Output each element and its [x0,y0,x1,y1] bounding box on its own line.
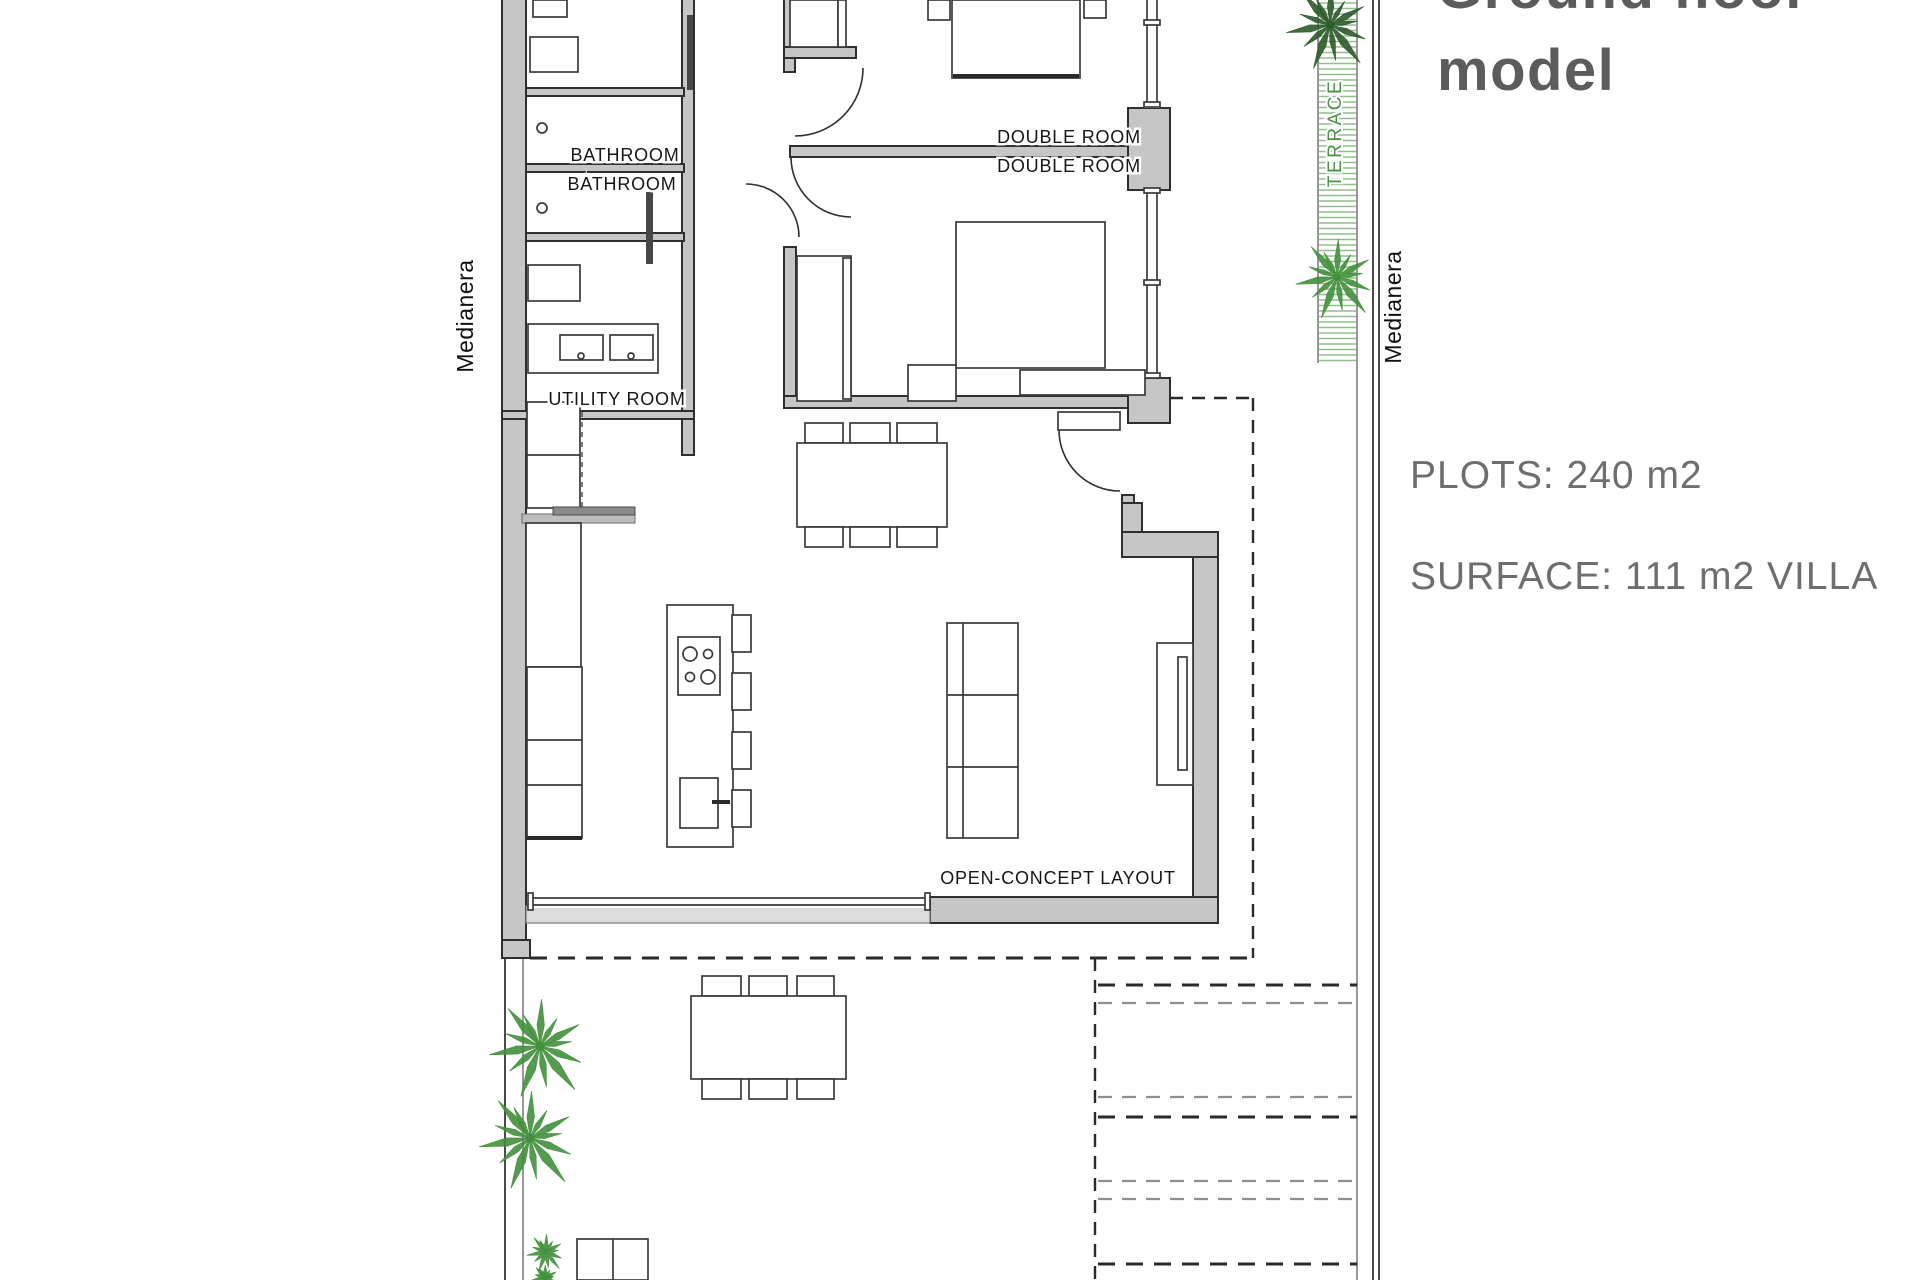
dining-chair [805,527,843,547]
kitchen-counter-edge [553,507,635,515]
outdoor-chair [797,976,834,996]
left-party-wall [502,0,526,957]
double-room1-label: DOUBLE ROOM [997,127,1141,147]
plant-icon [531,1265,556,1280]
window-gap [528,894,928,908]
outdoor-chair [749,976,787,996]
nightstand [1084,0,1106,18]
laundry-sink [610,335,653,360]
dining-chair [850,423,890,443]
entrance-door-leaf [1058,412,1120,430]
wc-cistern [533,0,567,17]
shower-tray [530,37,578,72]
terrace-label: TERRACE [1325,79,1346,187]
bedroom2-door-arc [791,157,851,217]
hallway-door-arc [746,184,799,237]
medianera-right-label: Medianera [1380,250,1406,363]
dining-chair [897,423,937,443]
double-room2-label: DOUBLE ROOM [997,156,1141,176]
outdoor-chair [749,1079,787,1099]
window-mullion [1144,188,1160,193]
plant-center [525,1133,534,1142]
floor-drain [537,123,547,133]
dashed-outlines [530,398,1357,1280]
dining-chair [805,423,843,443]
floor-plan-canvas: BATHROOM BATHROOM UTILITY ROOM DOUBLE RO… [0,0,1920,1280]
window-mullion [528,893,533,910]
window-mullion [1144,20,1160,25]
bed-1 [952,0,1080,78]
page-title-line1: Ground floor [1437,0,1809,21]
title-block: Ground floor model PLOTS: 240 m2 SURFACE… [1410,0,1878,598]
plant-icon [479,1091,571,1188]
tv-screen [1178,657,1187,770]
bedroom2-wall [784,247,796,408]
bathroom1-door-leaf [687,15,693,90]
outdoor-chair [702,976,741,996]
entrance-jog-wall [1122,532,1218,557]
left-wall-end-block [502,940,530,958]
nightstand [908,365,956,401]
bed-bench [1020,370,1145,395]
bottom-wall [930,897,1218,923]
closet-wall [784,47,856,58]
dining-table [797,443,947,527]
plant-center [1333,273,1341,281]
outdoor-table [691,996,846,1079]
bottom-window-sill [526,906,930,923]
medianera-left-label: Medianera [452,259,478,372]
bar-stool [732,732,751,769]
bathroom2-door-leaf [646,192,653,264]
nightstand [928,0,950,20]
surface-annotation: SURFACE: 111 m2 VILLA [1410,555,1878,598]
plots-annotation: PLOTS: 240 m2 [1410,454,1703,497]
plant-icon [489,999,581,1096]
entrance-door-arc [1059,430,1120,491]
cooktop [678,637,720,695]
utility-room-label: UTILITY ROOM [548,389,685,409]
window-mullion [1144,280,1160,285]
window-mullion [925,893,930,910]
kitchen-counter-run [526,523,581,667]
laundry-sink [560,335,603,360]
bathroom1-label: BATHROOM [570,145,679,165]
bed-2 [956,222,1105,368]
bathroom1-wall [526,164,684,172]
outdoor-chair [702,1079,741,1099]
dining-chair [897,527,937,547]
open-concept-label: OPEN-CONCEPT LAYOUT [940,868,1176,888]
outdoor-chair [797,1079,834,1099]
plant-center [544,1250,549,1255]
bathroom2-label: BATHROOM [567,174,676,194]
plant-center [535,1041,544,1050]
wc-wall [526,88,684,96]
bedroom1-door-arc [795,68,863,136]
plant-icon [527,1234,562,1271]
bar-stool [732,790,751,827]
bathroom2-wall [526,233,684,241]
window-mullion [1144,373,1160,378]
sofa [947,623,1018,838]
washer [528,265,580,301]
kitchen-base-cabinet [527,667,582,838]
bar-stool [732,673,751,710]
page-title-line2: model [1437,38,1615,103]
floor-drain [537,203,547,213]
window-mullion [1144,102,1160,107]
bar-stool [732,615,751,652]
wardrobe-sliding-door [838,0,846,47]
right-lower-wall [1193,557,1218,905]
wardrobe-sliding-door [843,258,851,399]
right-wall-pier [1128,108,1170,190]
plant-center [1326,21,1334,29]
dining-chair [850,527,890,547]
wardrobe [790,0,838,47]
